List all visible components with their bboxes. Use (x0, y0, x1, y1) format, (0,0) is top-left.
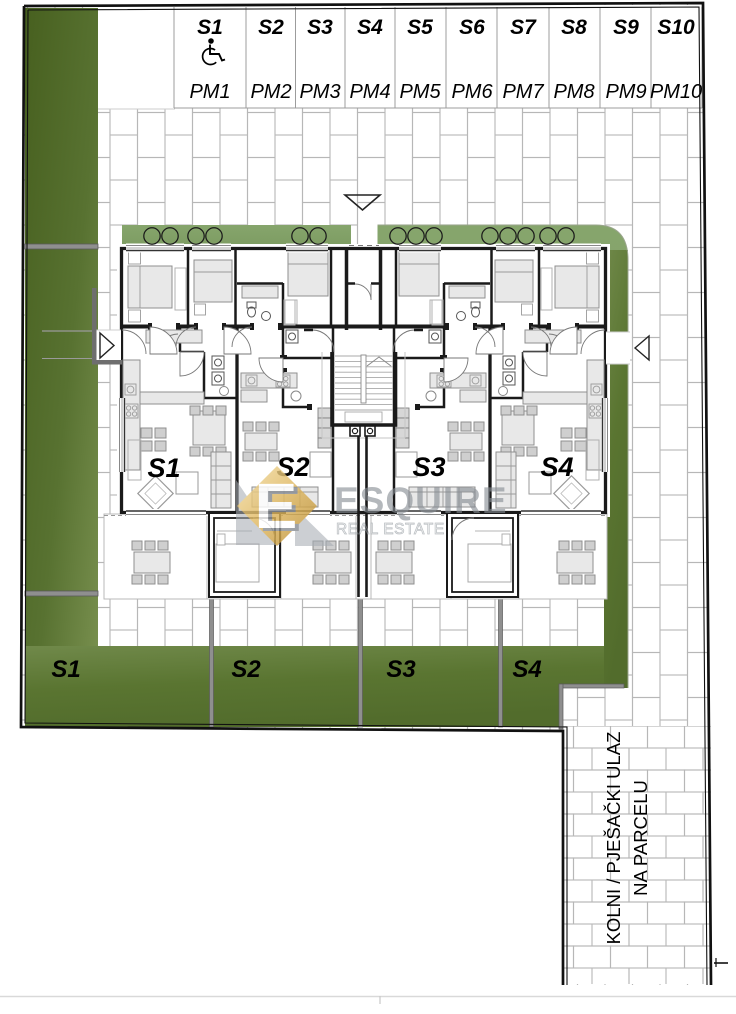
svg-text:PM3: PM3 (299, 81, 340, 103)
svg-text:PM6: PM6 (451, 81, 493, 103)
svg-text:ESQUIRE: ESQUIRE (334, 480, 508, 521)
svg-text:S6: S6 (459, 16, 485, 39)
svg-text:S4: S4 (357, 16, 383, 39)
svg-text:S1: S1 (197, 16, 223, 39)
svg-text:PM8: PM8 (553, 81, 594, 103)
svg-text:NA PARCELU: NA PARCELU (630, 780, 651, 896)
svg-text:KOLNI / PJEŠAČKI ULAZ: KOLNI / PJEŠAČKI ULAZ (603, 732, 624, 945)
svg-text:PM1: PM1 (189, 81, 230, 103)
svg-text:S3: S3 (307, 16, 333, 39)
svg-text:E: E (255, 470, 298, 542)
svg-text:REAL ESTATE: REAL ESTATE (336, 521, 445, 538)
svg-text:PM2: PM2 (250, 81, 291, 103)
svg-text:S4: S4 (540, 452, 573, 482)
svg-text:S2: S2 (258, 16, 284, 39)
svg-text:S1: S1 (147, 453, 180, 483)
svg-text:S4: S4 (512, 656, 541, 683)
svg-text:PM5: PM5 (399, 81, 441, 103)
svg-text:S10: S10 (657, 16, 695, 39)
svg-text:PM7: PM7 (502, 81, 544, 103)
svg-text:S7: S7 (510, 16, 537, 39)
svg-text:S3: S3 (386, 656, 416, 683)
svg-text:S1: S1 (51, 656, 80, 683)
svg-text:PM10: PM10 (650, 81, 702, 103)
svg-text:S5: S5 (407, 16, 433, 39)
svg-text:S2: S2 (231, 656, 261, 683)
svg-text:PM4: PM4 (349, 81, 390, 103)
svg-text:S3: S3 (412, 452, 445, 482)
svg-text:S8: S8 (561, 16, 587, 39)
svg-text:PM9: PM9 (605, 81, 646, 103)
svg-text:S9: S9 (613, 16, 639, 39)
